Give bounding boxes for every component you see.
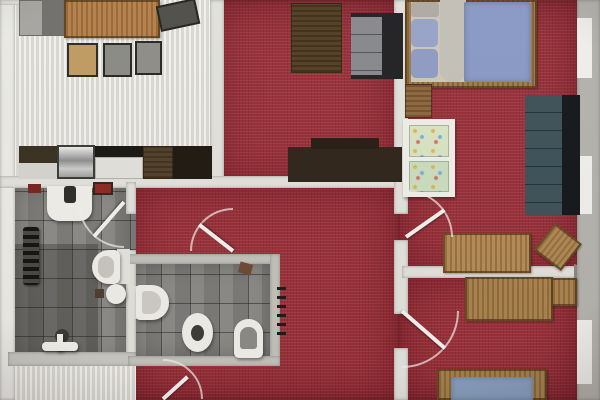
- wc-radiator-marks: [277, 287, 286, 337]
- bathroom-right-wall-upper: [126, 182, 136, 214]
- kitchen-cabinet-dark-top: [19, 146, 58, 163]
- kitchen-stove: [95, 146, 143, 157]
- kitchen-living-wall: [210, 0, 224, 188]
- chair-bottom-room: [551, 278, 577, 306]
- kitchen-counter-white: [95, 157, 143, 179]
- bath-small-item: [95, 289, 104, 298]
- teal-sofa-shadow: [562, 95, 580, 215]
- bathroom-bottom-wall: [8, 352, 136, 366]
- tv-stand: [288, 147, 402, 182]
- crib-mattress-upper: [409, 125, 449, 157]
- bed-blanket-roll: [440, 0, 466, 82]
- coffee-table: [291, 3, 342, 73]
- dining-chair-3: [135, 41, 162, 75]
- pedestal-sink-ball: [106, 284, 126, 304]
- wc-bidet-inner: [240, 327, 257, 349]
- single-bed-mattress: [451, 377, 533, 400]
- wall-towel-red-left: [28, 184, 41, 193]
- dining-chair-1: [67, 43, 98, 77]
- kitchen-cabinet-black: [173, 146, 212, 179]
- bed-pillow-top: [411, 2, 439, 17]
- crib-mattress-lower: [409, 161, 449, 192]
- tv-stand-step: [311, 138, 379, 149]
- wall-towel-red-right: [93, 182, 113, 195]
- desk-middle-room: [443, 233, 531, 273]
- left-outer-wall: [0, 0, 15, 400]
- floor-plan: [0, 0, 600, 400]
- toilet-bowl-inner: [98, 256, 114, 278]
- shower-handle-bar: [42, 342, 78, 351]
- desk-bottom-room: [465, 277, 553, 321]
- wardrobe: [405, 84, 432, 118]
- bed-duvet: [464, 2, 531, 82]
- bed-pillow-1: [411, 19, 438, 47]
- wc-top-wall: [128, 254, 280, 264]
- kitchen-sink: [57, 145, 95, 179]
- kitchen-cabinet-brown: [143, 146, 173, 179]
- towel-radiator: [23, 227, 39, 285]
- kitchen-sideboard-dark: [42, 0, 64, 35]
- kitchen-cabinet-light: [19, 163, 58, 179]
- window-bottom: [577, 320, 592, 384]
- dining-table: [64, 0, 160, 38]
- wc-sink-drain: [191, 325, 204, 341]
- bed-pillow-2: [411, 49, 438, 78]
- bathroom-faucet: [64, 186, 76, 203]
- window-top: [577, 18, 592, 78]
- living-sofa-cushions: [351, 17, 382, 75]
- dining-chair-2: [103, 43, 132, 77]
